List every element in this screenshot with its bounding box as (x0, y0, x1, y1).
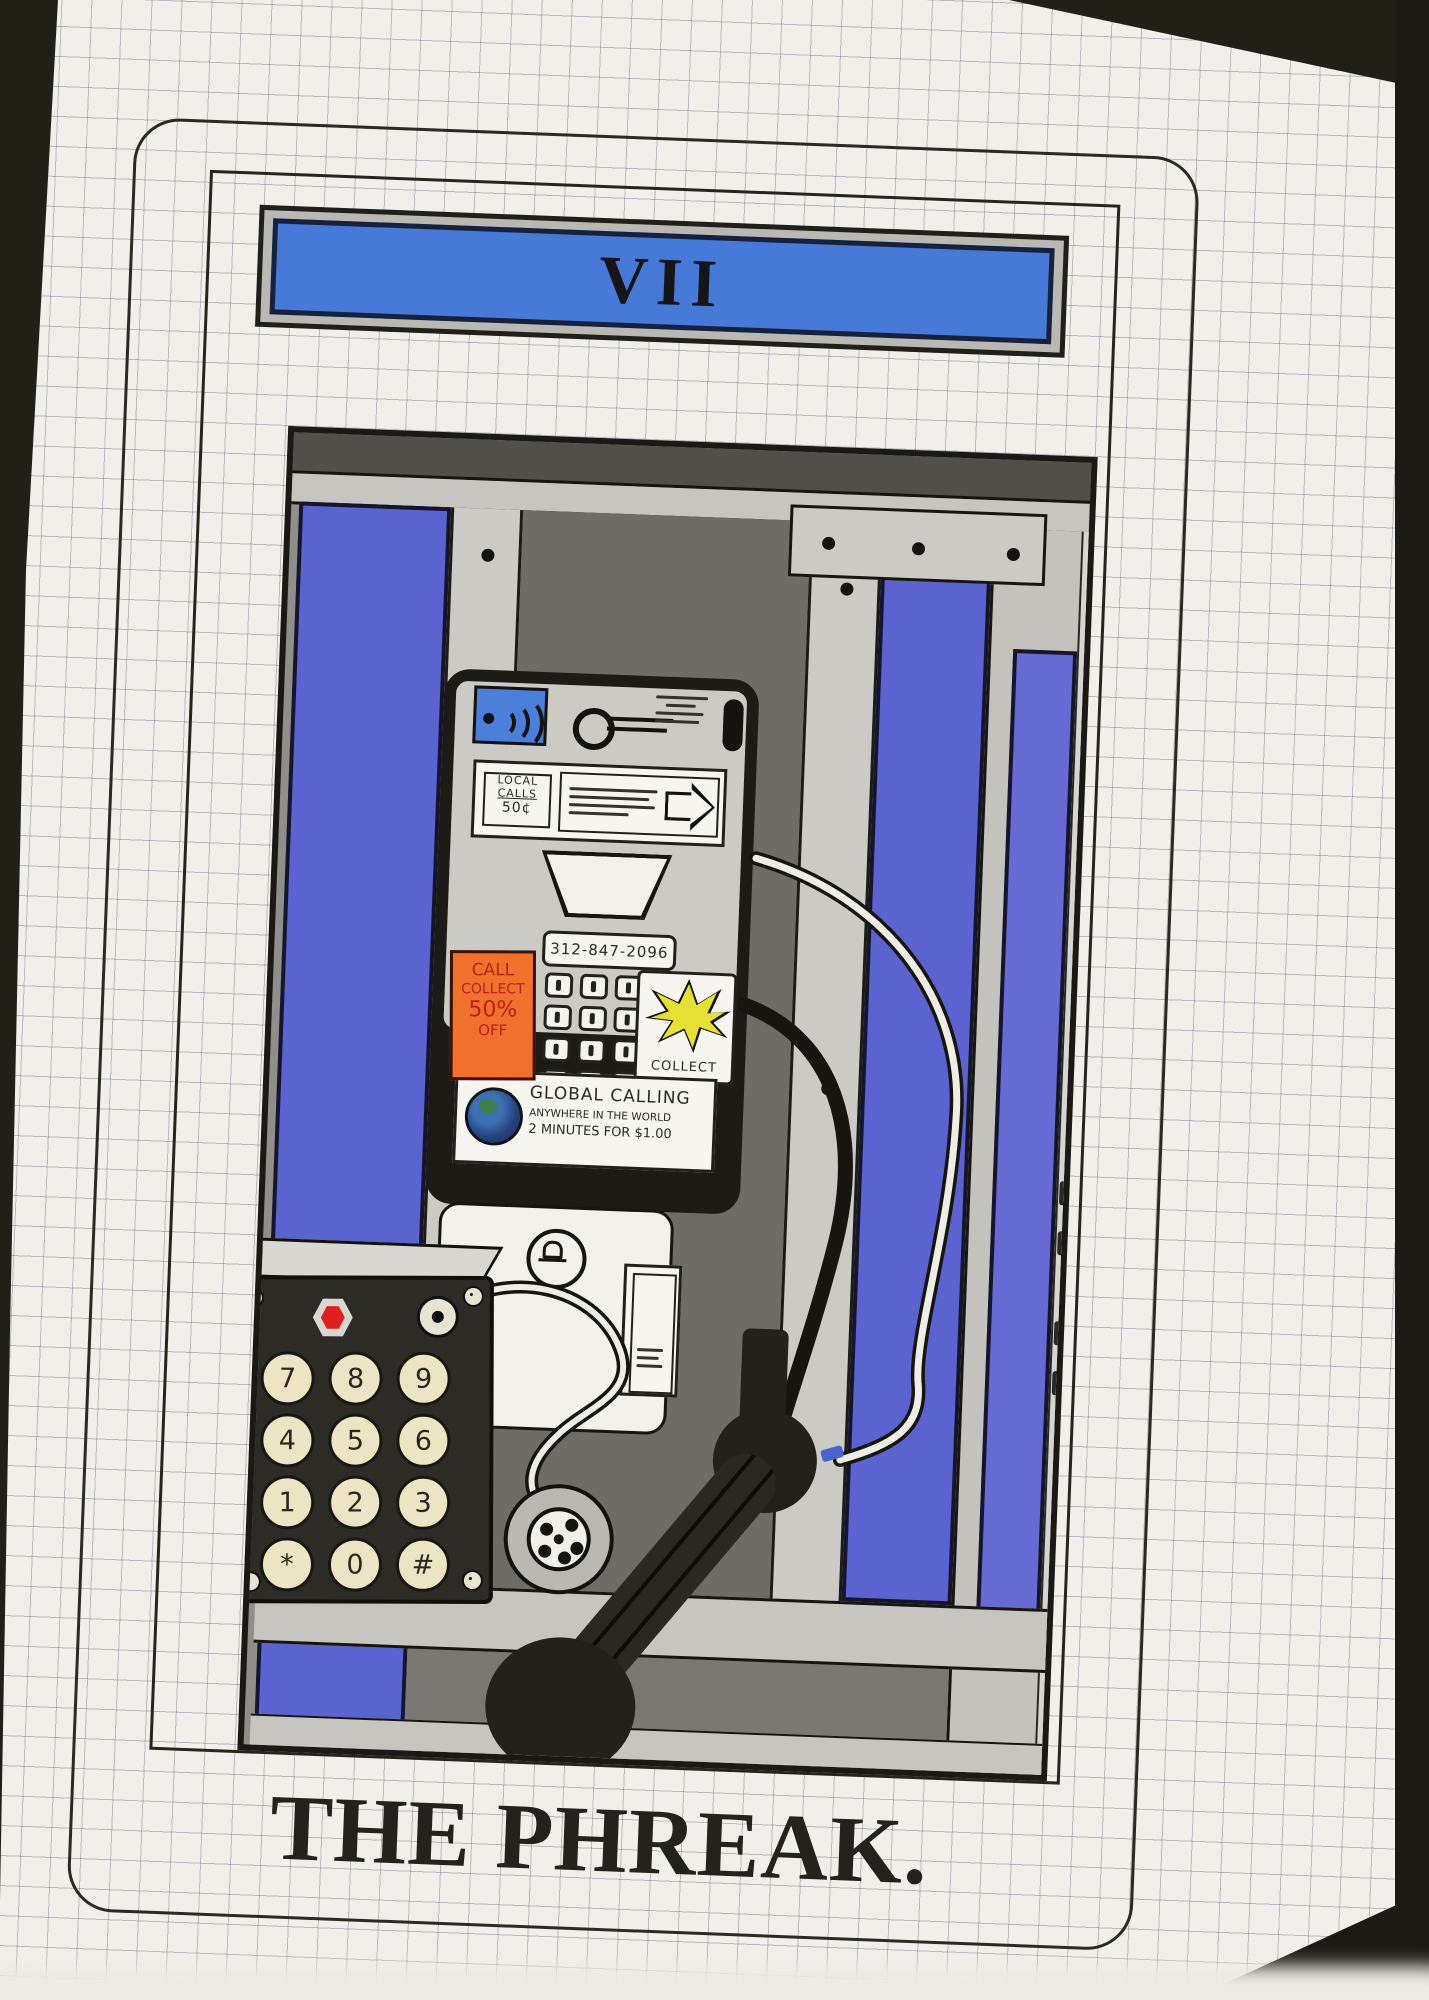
blue-box-key: * (260, 1537, 314, 1591)
card-numeral: VII (598, 239, 727, 323)
disc-hole-icon (558, 1551, 571, 1564)
screw-icon (240, 1571, 261, 1592)
blue-box-key: 3 (396, 1476, 450, 1530)
screw-icon (463, 1286, 484, 1307)
illustration-frame: VII (149, 170, 1120, 1785)
blue-box: 789456123*0# (237, 1275, 494, 1604)
output-jack-icon (417, 1296, 459, 1338)
blue-box-key: # (396, 1538, 450, 1592)
blue-box-key: 9 (397, 1352, 451, 1406)
photo-of-tarot-card: VII (0, 0, 1429, 2000)
numeral-banner: VII (255, 205, 1069, 358)
blue-box-key: 1 (260, 1475, 314, 1529)
blue-box-key: 8 (329, 1351, 383, 1405)
output-jack-icon (432, 1311, 444, 1323)
blue-box-key: 5 (328, 1413, 382, 1467)
numeral-banner-panel: VII (270, 218, 1055, 344)
table-surface-edge (1395, 0, 1429, 2000)
screw-icon (243, 1287, 264, 1308)
disc-hole-icon (538, 1544, 551, 1557)
disc-hole-icon (540, 1523, 553, 1536)
out-of-focus-card-edge (0, 1966, 1429, 2000)
speaker-disc-center (526, 1506, 592, 1572)
disc-hole-icon (565, 1518, 578, 1531)
blue-box-key: 0 (328, 1537, 382, 1591)
blue-box-keypad: 789456123*0# (260, 1351, 451, 1592)
blue-box-key: 6 (396, 1414, 450, 1468)
phone-booth: LOCAL CALLS 50¢ (237, 426, 1097, 1781)
screw-icon (462, 1570, 483, 1591)
blue-box-key: 4 (260, 1413, 314, 1467)
blue-box-key: 7 (261, 1351, 315, 1405)
blue-box-key: 2 (328, 1475, 382, 1529)
disc-hole-icon (554, 1534, 564, 1544)
graph-paper: VII (0, 0, 1429, 2000)
disc-hole-icon (570, 1542, 583, 1555)
